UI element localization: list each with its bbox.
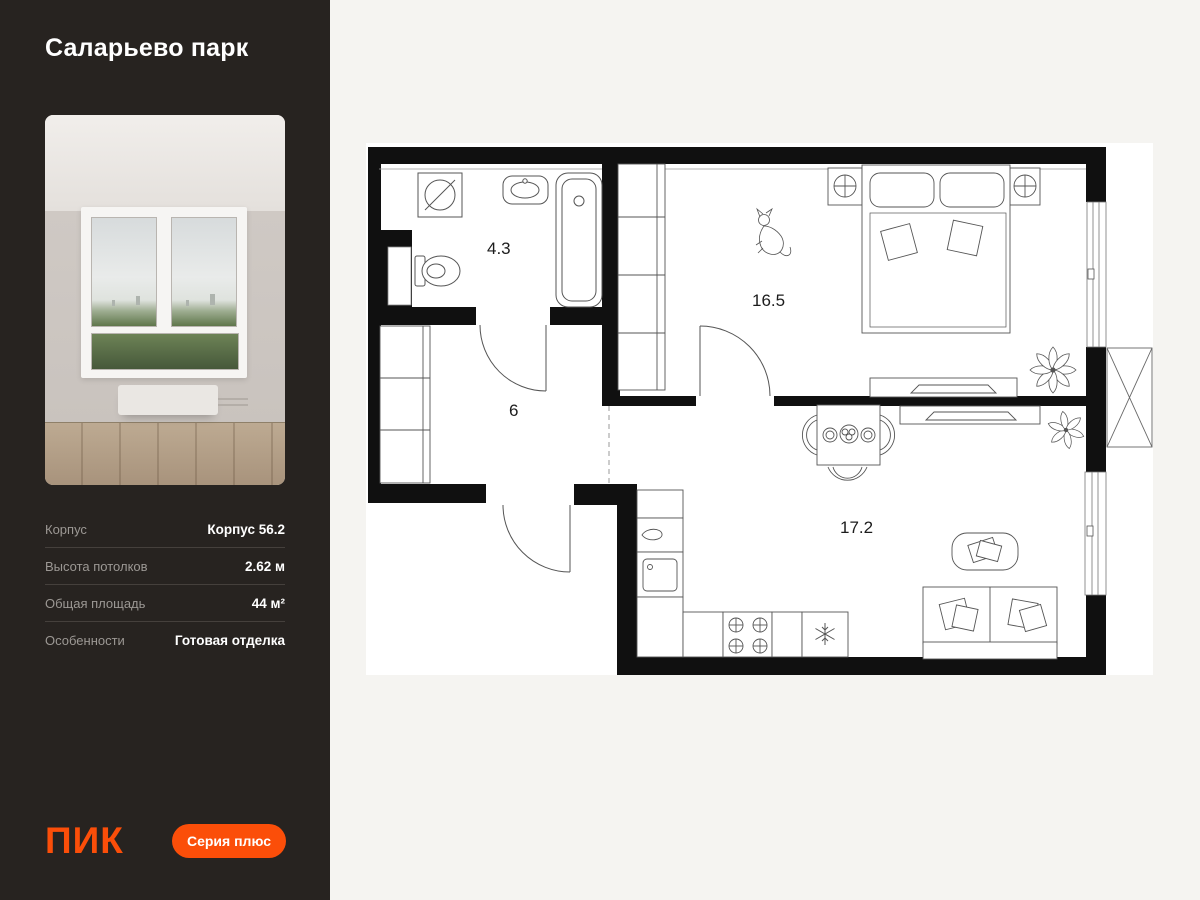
pik-logo: ПИК (45, 820, 124, 862)
spec-label: Корпус (45, 522, 87, 537)
coffee-table-icon (952, 533, 1018, 570)
photo-radiator (118, 385, 218, 415)
interior-photo (45, 115, 285, 485)
spec-value: 44 м² (252, 596, 285, 611)
hall-wardrobe-icon (380, 326, 430, 483)
toilet-icon (415, 256, 460, 286)
window-pane-right (171, 217, 237, 327)
bedroom-wardrobe-icon (618, 164, 665, 390)
photo-pipe (218, 398, 248, 400)
photo-floor (45, 422, 285, 485)
window-pane-left (91, 217, 157, 327)
living-tv-icon (900, 406, 1040, 424)
sink-icon (503, 176, 548, 204)
spec-label: Особенности (45, 633, 125, 648)
nightstand-left-icon (828, 168, 862, 205)
room-area-hallway: 6 (509, 401, 518, 420)
room-area-kitchen-living: 17.2 (840, 518, 873, 537)
spec-row-ceiling-height: Высота потолков 2.62 м (45, 548, 285, 585)
spec-label: Общая площадь (45, 596, 145, 611)
sofa-icon (923, 587, 1057, 659)
floor-plan: 4.3 6 16.5 17.2 (366, 143, 1153, 675)
photo-window (81, 207, 247, 378)
spec-value: 2.62 м (245, 559, 285, 574)
photo-pipe (218, 404, 248, 406)
nightstand-right-icon (1010, 168, 1040, 205)
double-bed-icon (862, 165, 1010, 333)
project-title: Саларьево парк (45, 34, 305, 63)
bathtub-icon (556, 173, 602, 307)
window-pane-bottom (91, 333, 239, 370)
spec-value: Корпус 56.2 (207, 522, 285, 537)
living-window-icon (1085, 472, 1106, 595)
washing-machine-icon (418, 173, 462, 217)
listing-card: Саларьево парк Корпус (0, 0, 1200, 900)
spec-value: Готовая отделка (175, 633, 285, 648)
vent-shaft (388, 247, 411, 305)
series-plus-badge[interactable]: Серия плюс (172, 824, 286, 858)
kitchen-sink-icon (643, 559, 677, 591)
room-area-bedroom: 16.5 (752, 291, 785, 310)
bedroom-tv-icon (870, 378, 1017, 397)
room-area-bathroom: 4.3 (487, 239, 511, 258)
photo-ceiling (45, 115, 285, 211)
plant-icon (1030, 347, 1076, 393)
spec-row-features: Особенности Готовая отделка (45, 622, 285, 658)
sidebar: Саларьево парк Корпус (0, 0, 330, 900)
spec-row-total-area: Общая площадь 44 м² (45, 585, 285, 622)
hallway (380, 326, 430, 483)
spec-row-korpus: Корпус Корпус 56.2 (45, 511, 285, 548)
spec-table: Корпус Корпус 56.2 Высота потолков 2.62 … (45, 511, 285, 658)
bedroom-window-icon (1087, 202, 1106, 347)
spec-label: Высота потолков (45, 559, 148, 574)
dining-table-icon (817, 405, 880, 465)
